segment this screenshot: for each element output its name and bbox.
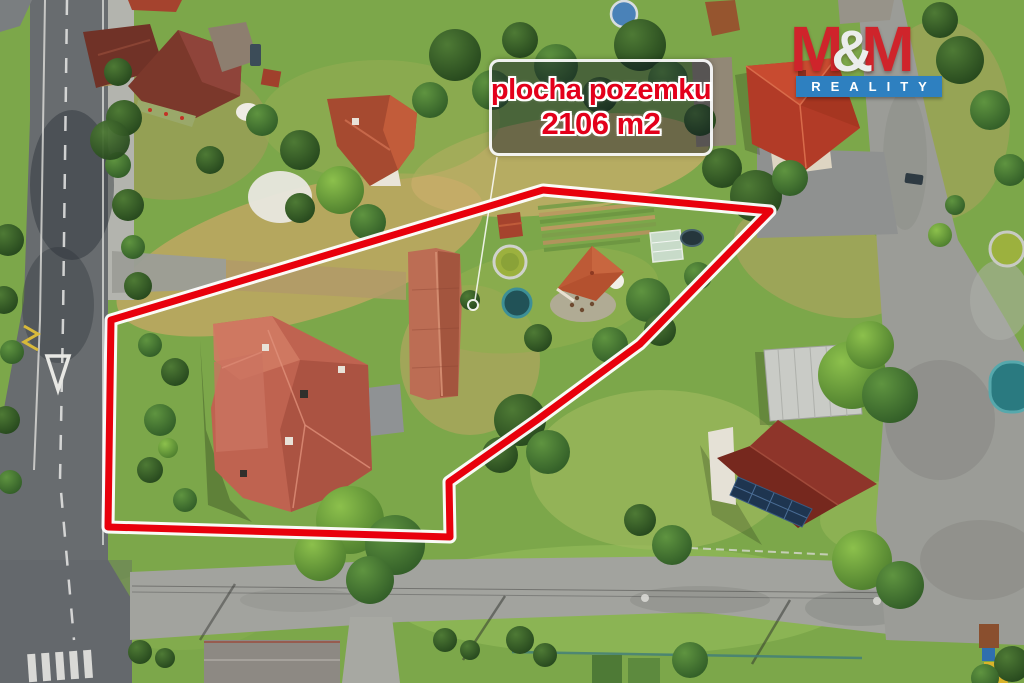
- brand-logo-banner: REALITY: [796, 76, 942, 97]
- round-pool-green: [494, 246, 526, 278]
- garden-shed: [497, 212, 523, 239]
- brand-logo-m2: M: [861, 13, 909, 85]
- trampoline: [681, 230, 703, 246]
- plot-area-label: plocha pozemku 2106 m2: [489, 59, 713, 156]
- brand-logo: M&M REALITY: [790, 22, 950, 102]
- barn-long: [408, 248, 462, 400]
- round-pool-teal: [503, 289, 531, 317]
- neighbor-pool-green: [990, 232, 1024, 266]
- house-bottom: [204, 640, 340, 683]
- plot-area-value: 2106 m2: [542, 108, 661, 141]
- listing-photo: plocha pozemku 2106 m2 M&M REALITY: [0, 0, 1024, 683]
- garden-frames: [592, 655, 622, 683]
- plot-area-label-line1: plocha pozemku: [491, 75, 711, 105]
- greenhouse: [650, 230, 683, 262]
- neighbor-pool-teal: [990, 362, 1024, 412]
- brand-logo-subtitle: REALITY: [801, 80, 937, 93]
- brand-logo-ampersand: &: [831, 19, 868, 84]
- brand-logo-wordmark: M&M: [790, 14, 910, 84]
